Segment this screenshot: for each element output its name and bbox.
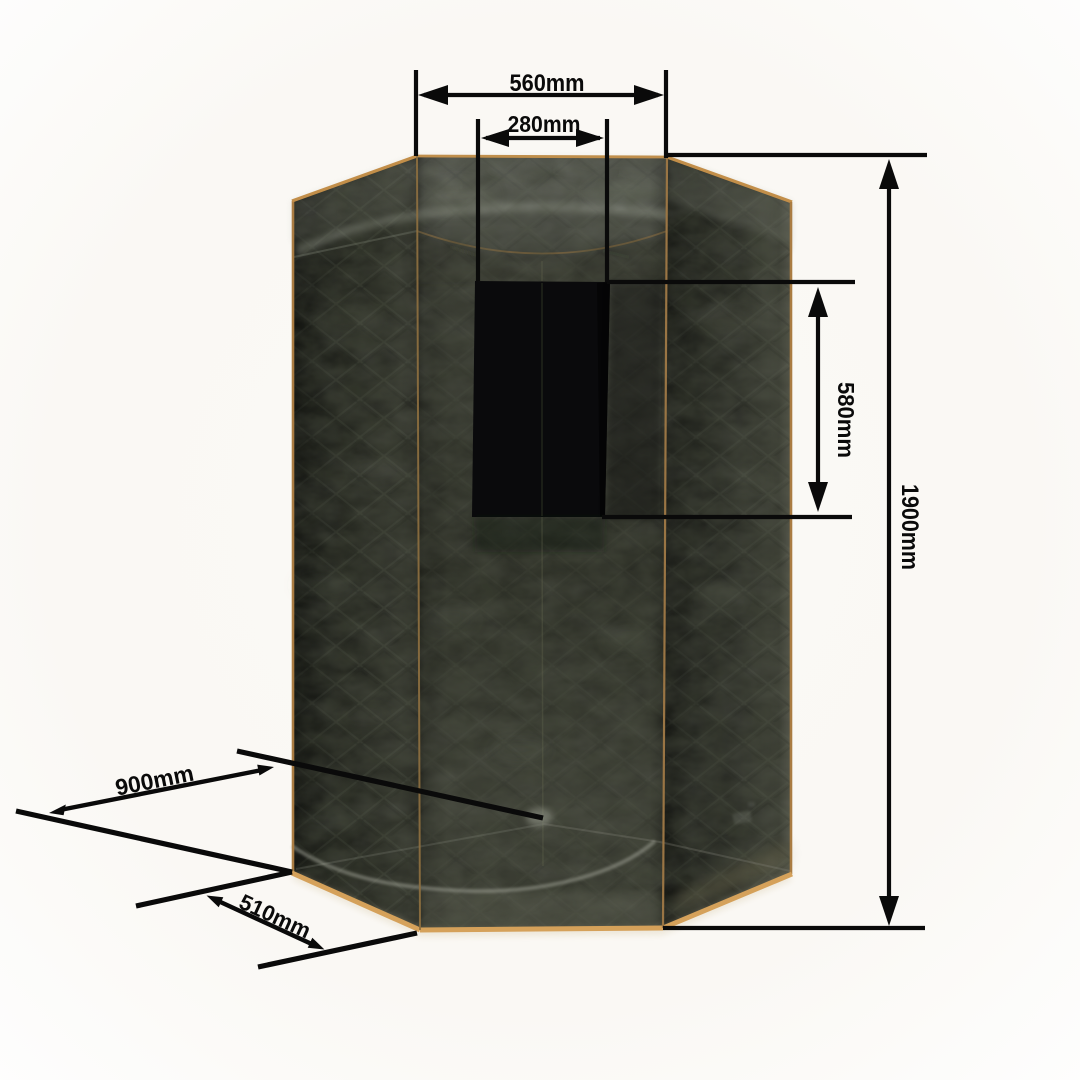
svg-text:1900mm: 1900mm: [896, 484, 923, 570]
svg-text:560mm: 560mm: [510, 70, 585, 97]
svg-text:280mm: 280mm: [508, 111, 581, 137]
svg-text:580mm: 580mm: [833, 382, 859, 458]
